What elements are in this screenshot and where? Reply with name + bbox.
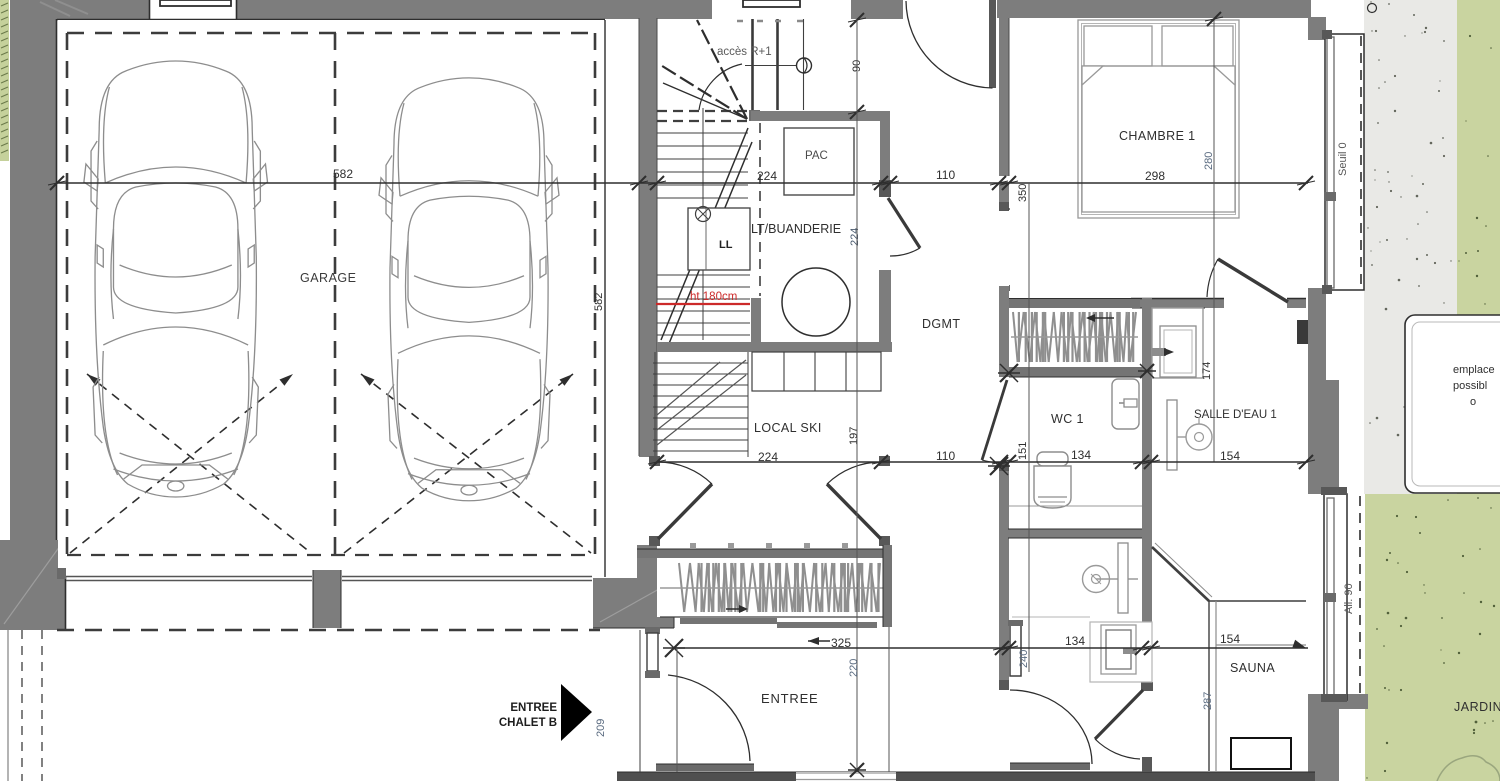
svg-text:ht 180cm: ht 180cm	[690, 291, 737, 303]
svg-text:582: 582	[333, 167, 353, 181]
svg-text:SALLE D'EAU 1: SALLE D'EAU 1	[1194, 409, 1277, 421]
svg-text:582: 582	[593, 293, 605, 311]
svg-text:DGMT: DGMT	[922, 317, 960, 331]
svg-text:134: 134	[1065, 634, 1085, 648]
svg-text:SAUNA: SAUNA	[1230, 661, 1275, 675]
svg-text:325: 325	[831, 636, 851, 650]
svg-text:ENTREE: ENTREE	[510, 702, 557, 714]
svg-text:197: 197	[848, 427, 860, 445]
svg-text:possibl: possibl	[1453, 380, 1487, 392]
svg-text:WC 1: WC 1	[1051, 412, 1084, 426]
svg-text:110: 110	[936, 449, 955, 463]
svg-text:287: 287	[1202, 692, 1214, 710]
svg-text:LL: LL	[719, 239, 733, 251]
svg-text:224: 224	[849, 228, 861, 246]
svg-text:LT/BUANDERIE: LT/BUANDERIE	[751, 222, 841, 236]
svg-text:298: 298	[1145, 169, 1165, 183]
svg-text:CHAMBRE 1: CHAMBRE 1	[1119, 129, 1196, 143]
svg-text:GARAGE: GARAGE	[300, 271, 357, 285]
svg-text:All. 90: All. 90	[1343, 583, 1355, 614]
svg-text:emplace: emplace	[1453, 364, 1495, 376]
svg-text:Seuil 0: Seuil 0	[1337, 142, 1349, 176]
svg-text:accès R+1: accès R+1	[717, 46, 772, 58]
svg-text:110: 110	[936, 168, 955, 182]
svg-text:224: 224	[758, 450, 778, 464]
svg-text:o: o	[1470, 396, 1476, 408]
svg-text:CHALET B: CHALET B	[499, 717, 557, 729]
svg-text:280: 280	[1203, 152, 1215, 170]
svg-text:240: 240	[1018, 650, 1030, 668]
svg-text:220: 220	[848, 659, 860, 677]
svg-text:134: 134	[1071, 448, 1091, 462]
svg-text:151: 151	[1017, 442, 1029, 460]
svg-text:154: 154	[1220, 632, 1240, 646]
svg-text:174: 174	[1201, 362, 1213, 380]
svg-text:JARDIN: JARDIN	[1454, 700, 1500, 714]
svg-text:209: 209	[595, 719, 607, 737]
svg-text:154: 154	[1220, 449, 1240, 463]
svg-text:224: 224	[757, 169, 777, 183]
svg-text:ENTREE: ENTREE	[761, 691, 819, 706]
svg-text:PAC: PAC	[805, 150, 828, 162]
svg-text:LOCAL SKI: LOCAL SKI	[754, 421, 822, 435]
svg-text:350: 350	[1017, 184, 1029, 202]
